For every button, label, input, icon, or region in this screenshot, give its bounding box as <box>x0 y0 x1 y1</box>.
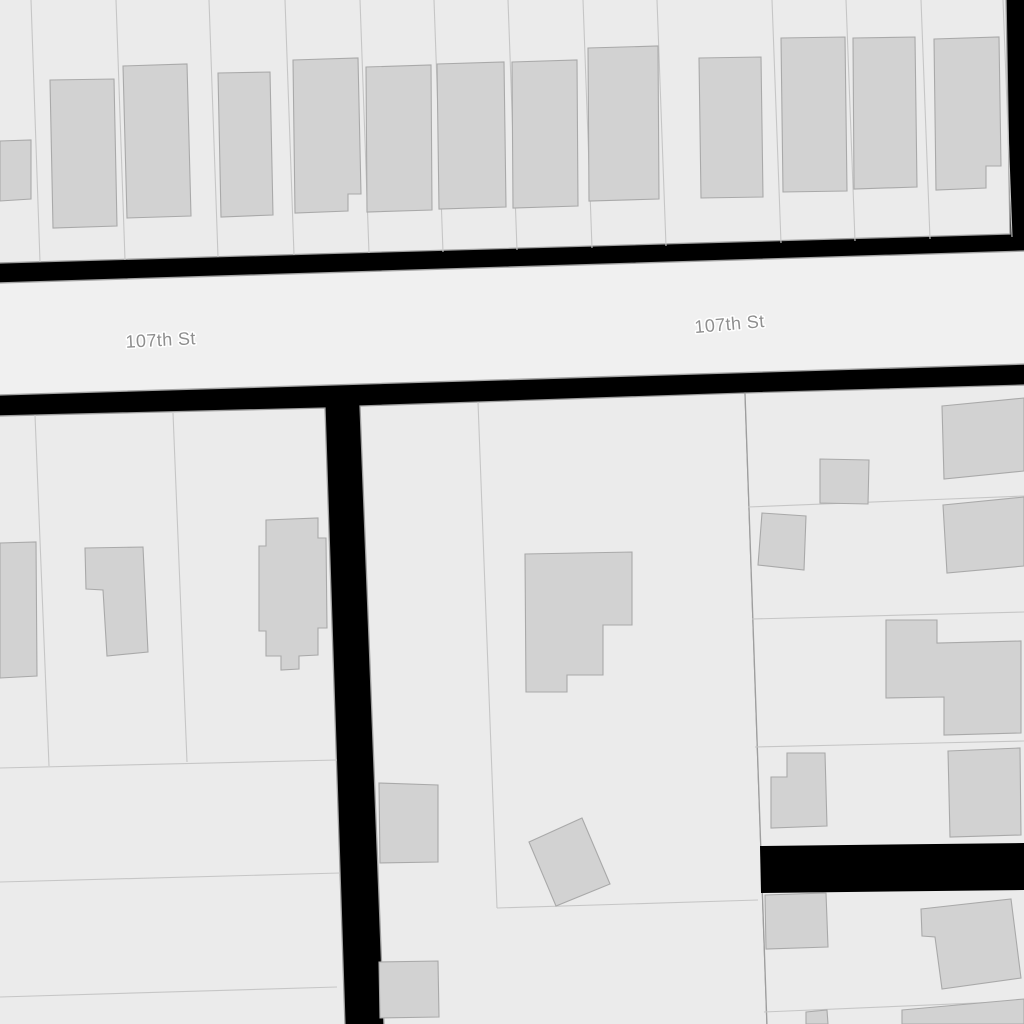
building-footprint <box>366 65 432 212</box>
building-footprint <box>293 58 361 213</box>
building-footprint <box>806 1010 828 1024</box>
map-canvas[interactable]: 107th St107th St <box>0 0 1024 1024</box>
building-footprint <box>820 459 869 504</box>
building-footprint <box>123 64 191 218</box>
building-footprint <box>588 46 659 201</box>
building-footprint <box>50 79 117 228</box>
building-footprint <box>437 62 506 209</box>
map-svg: 107th St107th St <box>0 0 1024 1024</box>
building-footprint <box>781 37 847 192</box>
building-footprint <box>699 57 763 198</box>
building-footprint <box>765 893 828 949</box>
building-footprint <box>0 140 31 201</box>
alley-gap <box>760 843 1024 893</box>
building-footprint <box>512 60 578 208</box>
building-footprint <box>218 72 273 217</box>
building-footprint <box>943 497 1024 573</box>
building-footprint <box>948 748 1021 837</box>
building-footprint <box>758 513 806 570</box>
building-footprint <box>942 398 1024 479</box>
building-footprint <box>853 37 917 189</box>
block-south-middle <box>360 393 767 1024</box>
block-southwest <box>0 408 345 1024</box>
building-footprint <box>259 518 327 670</box>
street-label: 107th St <box>125 328 196 352</box>
building-footprint <box>0 542 37 678</box>
building-footprint <box>379 783 438 863</box>
building-footprint <box>379 961 439 1018</box>
